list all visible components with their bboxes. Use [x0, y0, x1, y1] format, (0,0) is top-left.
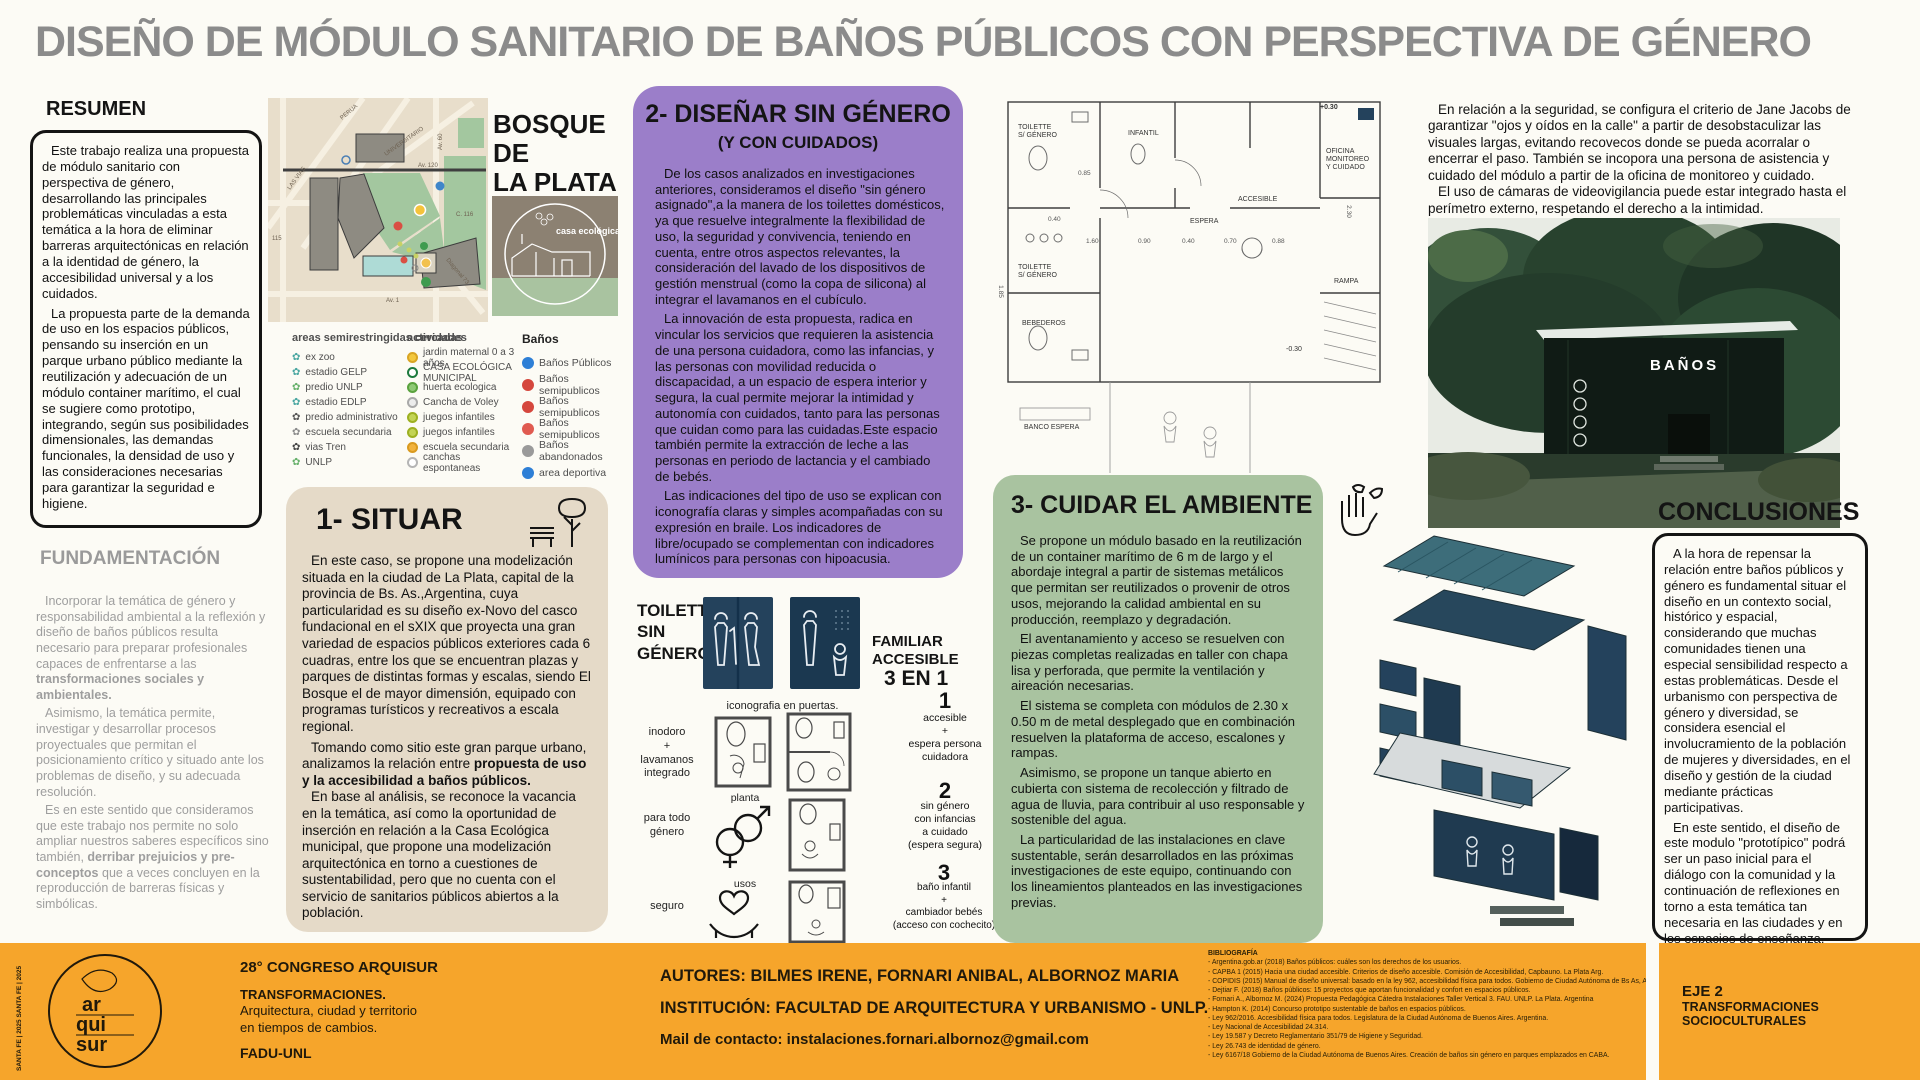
- bano-dot-icon: [522, 401, 534, 413]
- congress-title: 28° CONGRESO ARQUISUR: [240, 959, 438, 976]
- door-icon-sin-genero: [703, 597, 773, 694]
- activity-dot-icon: [407, 457, 418, 468]
- legend-item: Cancha de Voley: [407, 395, 519, 410]
- resumen-box: Este trabajo realiza una propuesta de mó…: [30, 130, 262, 528]
- area-icon: ✿: [292, 428, 300, 438]
- congress-theme: TRANSFORMACIONES. Arquitectura, ciudad y…: [240, 987, 417, 1036]
- bano-dot-icon: [522, 423, 534, 435]
- plan-sin-genero-image: [788, 798, 846, 877]
- plan-room-label: OFICINA MONITOREO Y CUIDADO: [1326, 148, 1369, 172]
- cuidar-p5: La particularidad de las instalaciones e…: [1011, 832, 1306, 911]
- bano-dot-icon: [522, 379, 534, 391]
- plan-infantil-image: [788, 880, 846, 949]
- item-1-label: accesible + espera persona cuidadora: [890, 712, 1000, 765]
- bibliography-entry: - Fornari A., Albornoz M. (2024) Propues…: [1208, 995, 1644, 1004]
- legend-banos-heading: Baños: [522, 332, 622, 346]
- plan-inodoro-image: [714, 716, 772, 793]
- plan-room-label: BANCO ESPERA: [1024, 424, 1079, 432]
- seguridad-text: En relación a la seguridad, se configura…: [1428, 102, 1852, 217]
- bibliography-entry: - Argentina.gob.ar (2018) Baños públicos…: [1208, 958, 1644, 967]
- svg-text:qui: qui: [76, 1014, 106, 1036]
- fundamentacion-p1a: Incorporar la temática de género y respo…: [36, 594, 265, 671]
- plan-room-label: ACCESIBLE: [1238, 196, 1277, 204]
- svg-text:casa ecológica: casa ecológica: [556, 226, 618, 236]
- cuidar-box: 3- CUIDAR EL AMBIENTE Se propone un módu…: [993, 475, 1323, 943]
- legend-item: juegos infantiles: [407, 425, 519, 440]
- bibliography-entry: - Ley 19.587 y Decreto Reglamentario 351…: [1208, 1032, 1644, 1041]
- bibliography-entry: - Dejtiar F. (2018) Baños públicos: 15 p…: [1208, 986, 1644, 995]
- plan-familiar-image: [786, 712, 852, 797]
- area-icon: ✿: [292, 368, 300, 378]
- legend-item: CASA ECOLÓGICA MUNICIPAL: [407, 365, 519, 380]
- legend-actividades: actividades jardin maternal 0 a 3 años C…: [407, 332, 519, 470]
- plan-room-label: TOILETTE S/ GÉNERO: [1018, 124, 1057, 140]
- situar-box: 1- SITUAR En este caso, se propone una m…: [286, 487, 608, 932]
- situar-p3: En base al análisis, se reconoce la vaca…: [302, 789, 594, 922]
- bibliography-entry: - Ley 26.743 de identidad de género.: [1208, 1042, 1644, 1051]
- legend-item: Baños Públicos: [522, 352, 622, 374]
- bibliography-entry: - Ley Nacional de Accesibilidad 24.314.: [1208, 1023, 1644, 1032]
- resumen-p1: Este trabajo realiza una propuesta de mó…: [42, 143, 250, 302]
- fundamentacion-p2: Asimismo, la temática permite, investiga…: [36, 706, 270, 800]
- area-icon: ✿: [292, 353, 300, 363]
- area-icon: ✿: [292, 383, 300, 393]
- arquisur-logo: ar qui sur: [42, 949, 168, 1078]
- cuidar-p3: El sistema se completa con módulos de 2.…: [1011, 698, 1306, 761]
- bibliography-entry: - Hampton K. (2014) Concurso prototipo s…: [1208, 1005, 1644, 1014]
- congress-theme-l3: en tiempos de cambios.: [240, 1020, 377, 1035]
- disenar-heading: 2- DISEÑAR SIN GÉNERO: [633, 100, 963, 129]
- bano-dot-icon: [522, 357, 534, 369]
- situar-text: En este caso, se propone una modelizació…: [302, 553, 594, 926]
- activity-dot-icon: [407, 427, 418, 438]
- svg-text:BAÑOS: BAÑOS: [1650, 356, 1719, 374]
- bibliography-heading: BIBLIOGRAFÍA: [1208, 949, 1644, 958]
- svg-text:sur: sur: [76, 1034, 107, 1056]
- disenar-text: De los casos analizados en investigacion…: [655, 166, 945, 571]
- footer-divider: [1646, 943, 1659, 1080]
- legend-item: juegos infantiles: [407, 410, 519, 425]
- svg-text:Av. 1: Av. 1: [386, 298, 400, 304]
- area-icon: ✿: [292, 443, 300, 453]
- area-icon: ✿: [292, 458, 300, 468]
- footer-stamp-text: SANTA FE | 2025 SANTA FE | 2025: [16, 951, 23, 1071]
- area-icon: ✿: [292, 398, 300, 408]
- cuidar-heading: 3- CUIDAR EL AMBIENTE: [1011, 491, 1312, 520]
- eje-number: EJE 2: [1682, 983, 1819, 1000]
- door-icon-familiar: [790, 597, 860, 694]
- bano-dot-icon: [522, 467, 534, 479]
- cuidar-p2: El aventanamiento y acceso se resuelven …: [1011, 631, 1306, 694]
- plan-room-label: BEBEDEROS: [1022, 320, 1066, 328]
- bibliography-entry: - Ley 962/2016. Accesibilidad física par…: [1208, 1014, 1644, 1023]
- fundamentacion-heading: FUNDAMENTACIÓN: [40, 548, 220, 570]
- disenar-box: 2- DISEÑAR SIN GÉNERO (Y CON CUIDADOS) D…: [633, 86, 963, 578]
- footer-bar: SANTA FE | 2025 SANTA FE | 2025 ar qui s…: [0, 943, 1920, 1080]
- bibliography: BIBLIOGRAFÍA - Argentina.gob.ar (2018) B…: [1208, 949, 1644, 1060]
- legend-item: Baños abandonados: [522, 440, 622, 462]
- activity-dot-icon: [407, 442, 418, 453]
- activity-dot-icon: [407, 397, 418, 408]
- heart-hand-icon: [702, 886, 766, 949]
- svg-text:115: 115: [272, 236, 282, 242]
- eje-line2: TRANSFORMACIONES: [1682, 1000, 1819, 1014]
- congress-org: FADU-UNL: [240, 1045, 312, 1061]
- doors-caption: iconografia en puertas.: [690, 700, 875, 712]
- fundamentacion-p1b: transformaciones sociales y ambientales.: [36, 672, 204, 702]
- floorplan-drawing: +0.30 TOILETTE S/ GÉNERO INFANTIL OFICIN…: [990, 88, 1400, 478]
- disenar-p3: Las indicaciones del tipo de uso se expl…: [655, 488, 945, 567]
- legend-item: area deportiva: [522, 462, 622, 484]
- congress-theme-bold: TRANSFORMACIONES.: [240, 987, 386, 1002]
- legend-actividades-heading: actividades: [407, 332, 519, 344]
- item-1-number: 1: [890, 688, 1000, 714]
- svg-text:C. 116: C. 116: [456, 212, 474, 218]
- poster-root: DISEÑO DE MÓDULO SANITARIO DE BAÑOS PÚBL…: [0, 0, 1920, 1080]
- legend-item: Baños semipublicos: [522, 374, 622, 396]
- activity-dot-icon: [407, 382, 418, 393]
- legend-item: Baños semipublicos: [522, 396, 622, 418]
- tree-bench-icon: [526, 495, 588, 558]
- authors-line: AUTORES: BILMES IRENE, FORNARI ANIBAL, A…: [660, 967, 1179, 986]
- item-2-label: sin género con infancias a cuidado (espe…: [890, 800, 1000, 853]
- contact-mail-line[interactable]: Mail de contacto: instalaciones.fornari.…: [660, 1031, 1089, 1048]
- map-title: BOSQUE DE LA PLATA: [493, 110, 617, 197]
- cuidar-text: Se propone un módulo basado en la reutil…: [1011, 533, 1306, 915]
- seguridad-p2: El uso de cámaras de videovigilancia pue…: [1428, 184, 1852, 217]
- disenar-p1: De los casos analizados en investigacion…: [655, 166, 945, 307]
- eje-line3: SOCIOCULTURALES: [1682, 1014, 1819, 1028]
- bibliography-entry: - CAPBA 1 (2015) Hacia una ciudad accesi…: [1208, 968, 1644, 977]
- seguridad-p1: En relación a la seguridad, se configura…: [1428, 102, 1852, 184]
- plan-room-label: INFANTIL: [1128, 130, 1159, 138]
- activity-dot-icon: [407, 352, 418, 363]
- render-image: BAÑOS: [1428, 218, 1840, 528]
- plan-level-label: +0.30: [1320, 104, 1338, 112]
- bano-dot-icon: [522, 445, 534, 457]
- activity-dot-icon: [407, 367, 418, 378]
- resumen-heading: RESUMEN: [46, 98, 146, 121]
- page-title: DISEÑO DE MÓDULO SANITARIO DE BAÑOS PÚBL…: [35, 18, 1875, 67]
- plan-room-label: ESPERA: [1190, 218, 1218, 226]
- area-icon: ✿: [292, 413, 300, 423]
- activity-dot-icon: [407, 412, 418, 423]
- row2-label: para todo género: [628, 812, 706, 840]
- svg-text:ar: ar: [82, 994, 101, 1016]
- site-map-image: LAS VIAS PERUA UNIVERSITARIO Av. 120 115…: [268, 98, 488, 322]
- conclusiones-heading: CONCLUSIONES: [1658, 498, 1859, 527]
- familiar-label: FAMILIAR ACCESIBLE: [872, 633, 959, 669]
- svg-text:Av. 60: Av. 60: [438, 133, 444, 150]
- row1-label: inodoro + lavamanos integrado: [628, 726, 706, 781]
- conclusiones-p1: A la hora de repensar la relación entre …: [1664, 546, 1856, 816]
- plan-room-label: TOILETTE S/ GÉNERO: [1018, 264, 1057, 280]
- row3-label: seguro: [628, 900, 706, 912]
- plan-level-label: -0.30: [1286, 346, 1302, 354]
- conclusiones-box: A la hora de repensar la relación entre …: [1652, 533, 1868, 941]
- resumen-p2: La propuesta parte de la demanda de uso …: [42, 306, 250, 512]
- svg-text:Av. 120: Av. 120: [418, 163, 438, 169]
- bibliography-entry: - Ley 6167/18 Gobierno de la Ciudad Autó…: [1208, 1051, 1644, 1060]
- institution-line: INSTITUCIÓN: FACULTAD DE ARQUITECTURA Y …: [660, 999, 1208, 1018]
- bibliography-entry: - COPIDIS (2015) Manual de diseño univer…: [1208, 977, 1644, 986]
- congress-theme-l2: Arquitectura, ciudad y territorio: [240, 1003, 417, 1018]
- plan-room-label: RAMPA: [1334, 278, 1358, 286]
- cuidar-p1: Se propone un módulo basado en la reutil…: [1011, 533, 1306, 627]
- legend-item: Baños semipublicos: [522, 418, 622, 440]
- situar-p1: En este caso, se propone una modelizació…: [302, 553, 594, 736]
- gender-symbol-icon: [700, 798, 776, 879]
- item-3-label: baño infantil + cambiador bebés (acceso …: [885, 882, 1003, 932]
- eje-block: EJE 2 TRANSFORMACIONES SOCIOCULTURALES: [1682, 983, 1819, 1028]
- legend-banos: Baños Baños Públicos Baños semipublicos …: [522, 332, 622, 484]
- situar-heading: 1- SITUAR: [316, 503, 463, 537]
- cuidar-p4: Asimismo, se propone un tanque abierto e…: [1011, 765, 1306, 828]
- casa-ecologica-image: casa ecológica: [492, 196, 618, 316]
- disenar-p2: La innovación de esta propuesta, radica …: [655, 311, 945, 484]
- conclusiones-p2: En este sentido, el diseño de este modul…: [1664, 820, 1856, 947]
- fundamentacion-text: Incorporar la temática de género y respo…: [36, 594, 270, 913]
- legend-item: canchas espontaneas: [407, 455, 519, 470]
- disenar-subheading: (Y CON CUIDADOS): [633, 133, 963, 153]
- axonometric-diagram: [1372, 528, 1650, 943]
